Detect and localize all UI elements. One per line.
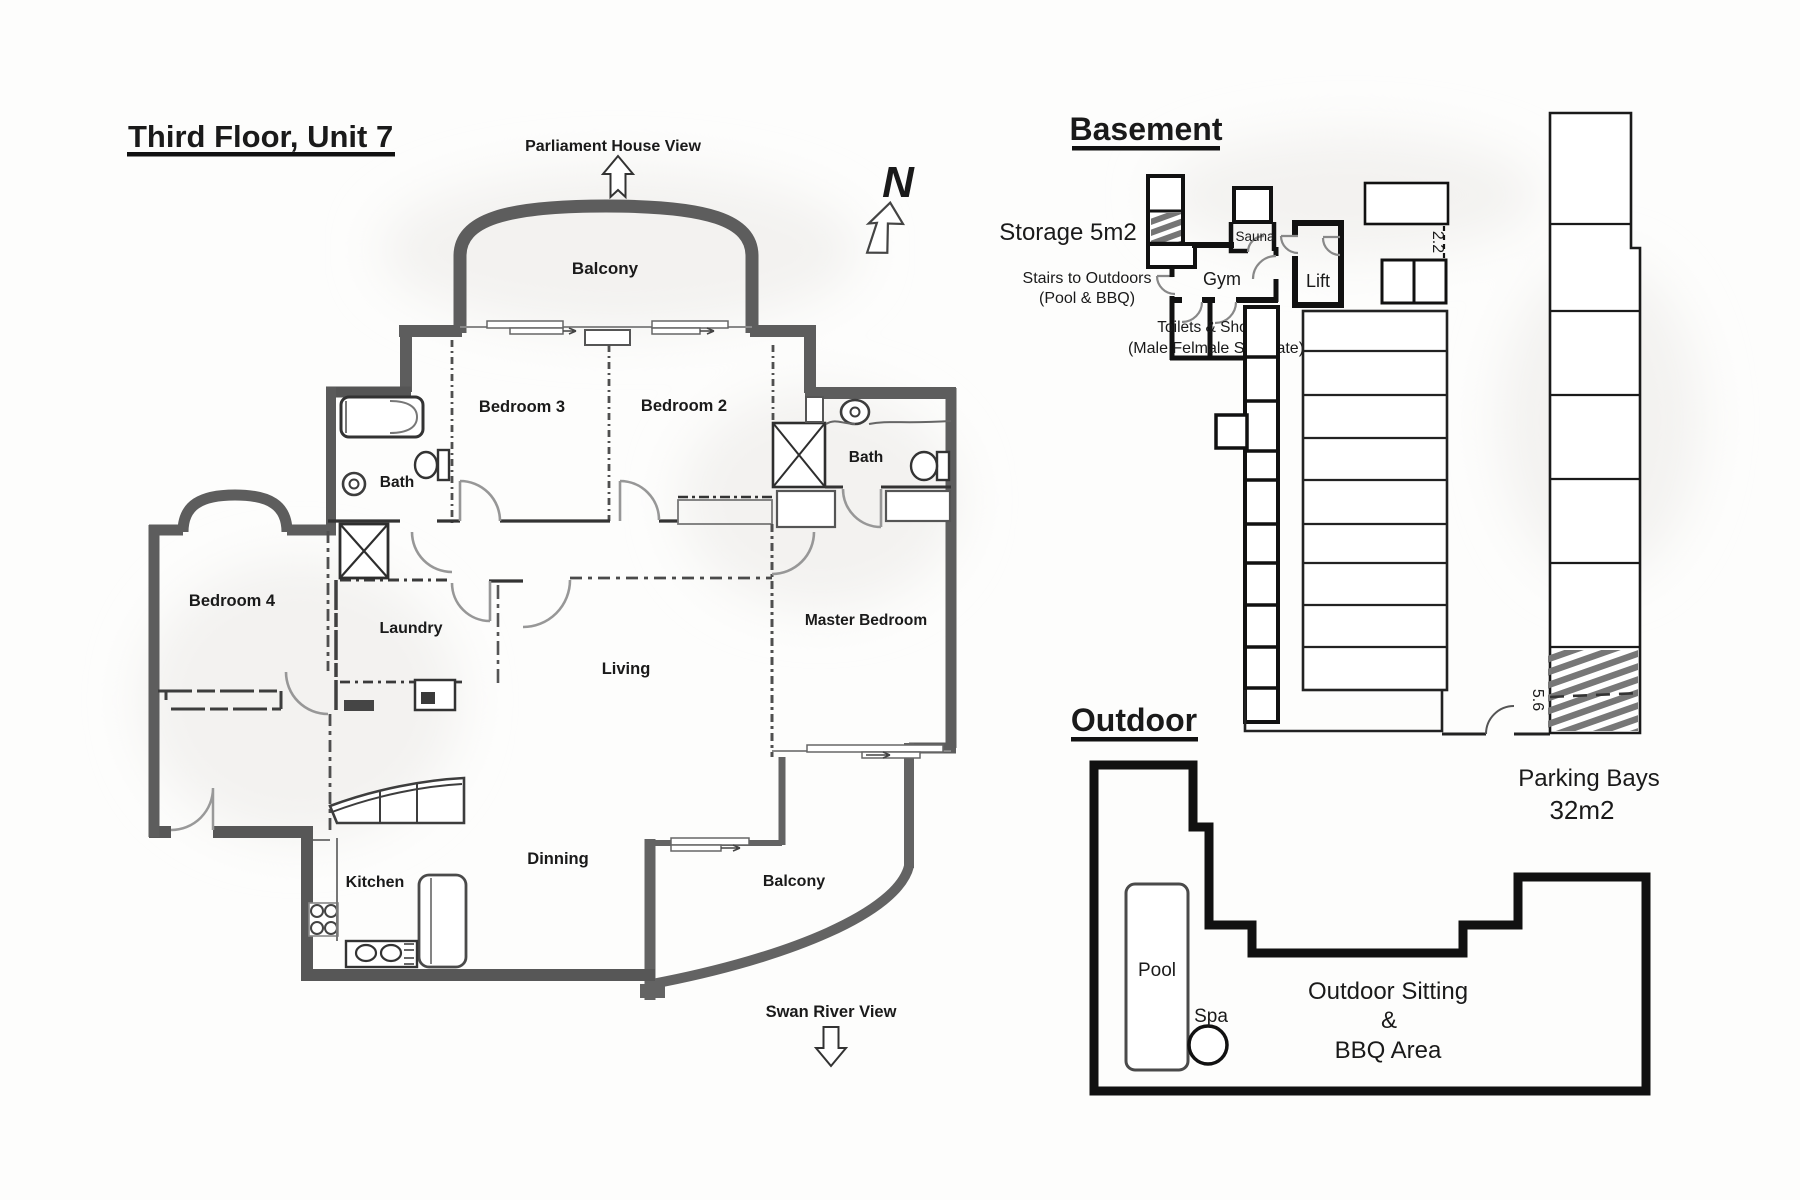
svg-text:Basement: Basement	[1070, 111, 1223, 147]
svg-text:Balcony: Balcony	[572, 259, 639, 278]
svg-text:Dinning: Dinning	[527, 850, 588, 868]
svg-text:Pool: Pool	[1138, 960, 1176, 981]
svg-text:Bath: Bath	[380, 474, 414, 491]
svg-text:Sauna: Sauna	[1235, 229, 1275, 244]
svg-text:&: &	[1381, 1007, 1397, 1034]
svg-text:BBQ Area: BBQ Area	[1335, 1037, 1442, 1064]
svg-text:Stairs to Outdoors: Stairs to Outdoors	[1023, 270, 1152, 287]
svg-text:Spa: Spa	[1194, 1006, 1228, 1027]
svg-text:Outdoor Sitting: Outdoor Sitting	[1308, 978, 1468, 1005]
svg-text:Outdoor: Outdoor	[1071, 702, 1197, 738]
svg-text:(Pool & BBQ): (Pool & BBQ)	[1039, 290, 1135, 307]
svg-text:Bath: Bath	[849, 449, 883, 466]
svg-text:Master Bedroom: Master Bedroom	[805, 612, 927, 629]
svg-text:Laundry: Laundry	[379, 620, 442, 637]
svg-text:5.6: 5.6	[1529, 689, 1546, 711]
svg-text:32m2: 32m2	[1549, 795, 1614, 825]
svg-text:Swan River View: Swan River View	[766, 1003, 897, 1021]
svg-text:Lift: Lift	[1306, 271, 1330, 291]
svg-text:Third Floor, Unit 7: Third Floor, Unit 7	[128, 119, 393, 154]
svg-text:Gym: Gym	[1203, 269, 1241, 289]
svg-text:2.2: 2.2	[1429, 231, 1446, 253]
svg-text:Storage 5m2: Storage 5m2	[999, 219, 1136, 246]
svg-text:Balcony: Balcony	[763, 873, 825, 890]
svg-text:Bedroom 2: Bedroom 2	[641, 397, 727, 415]
svg-text:Kitchen: Kitchen	[346, 874, 405, 891]
svg-text:Bedroom 3: Bedroom 3	[479, 398, 565, 416]
svg-text:Parliament House View: Parliament House View	[525, 138, 701, 155]
svg-text:Living: Living	[602, 660, 651, 678]
svg-text:Bedroom 4: Bedroom 4	[189, 592, 276, 610]
svg-text:Parking Bays: Parking Bays	[1518, 765, 1659, 792]
svg-text:N: N	[882, 158, 915, 207]
